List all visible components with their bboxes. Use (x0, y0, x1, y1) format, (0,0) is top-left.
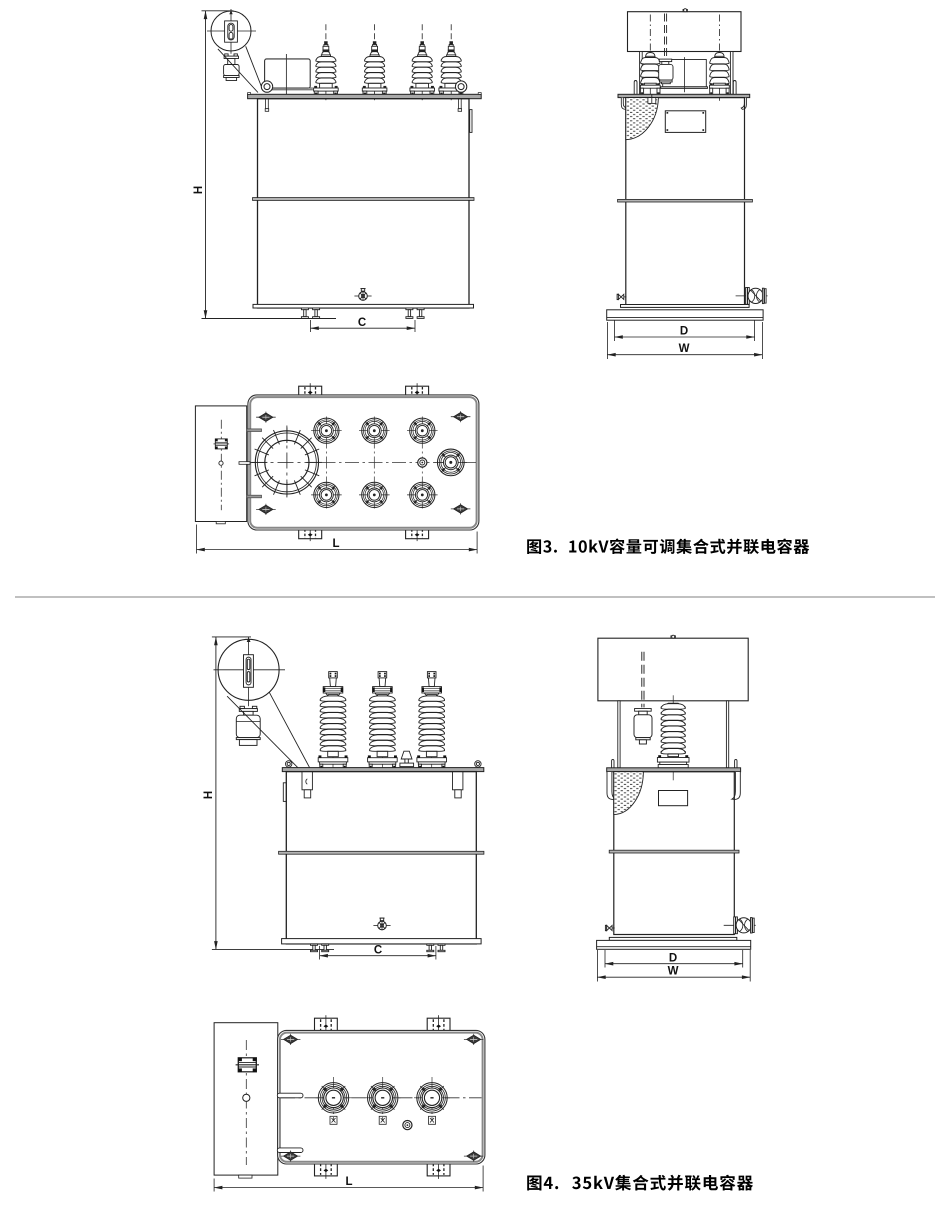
svg-text:W: W (668, 966, 679, 978)
svg-text:C: C (374, 944, 382, 956)
svg-text:H: H (193, 186, 205, 194)
svg-text:H: H (203, 791, 215, 799)
svg-text:C: C (358, 317, 366, 329)
svg-text:L: L (345, 1176, 352, 1188)
svg-text:D: D (680, 326, 688, 338)
svg-text:L: L (332, 538, 339, 550)
svg-text:D: D (669, 952, 677, 964)
svg-text:W: W (679, 343, 690, 355)
